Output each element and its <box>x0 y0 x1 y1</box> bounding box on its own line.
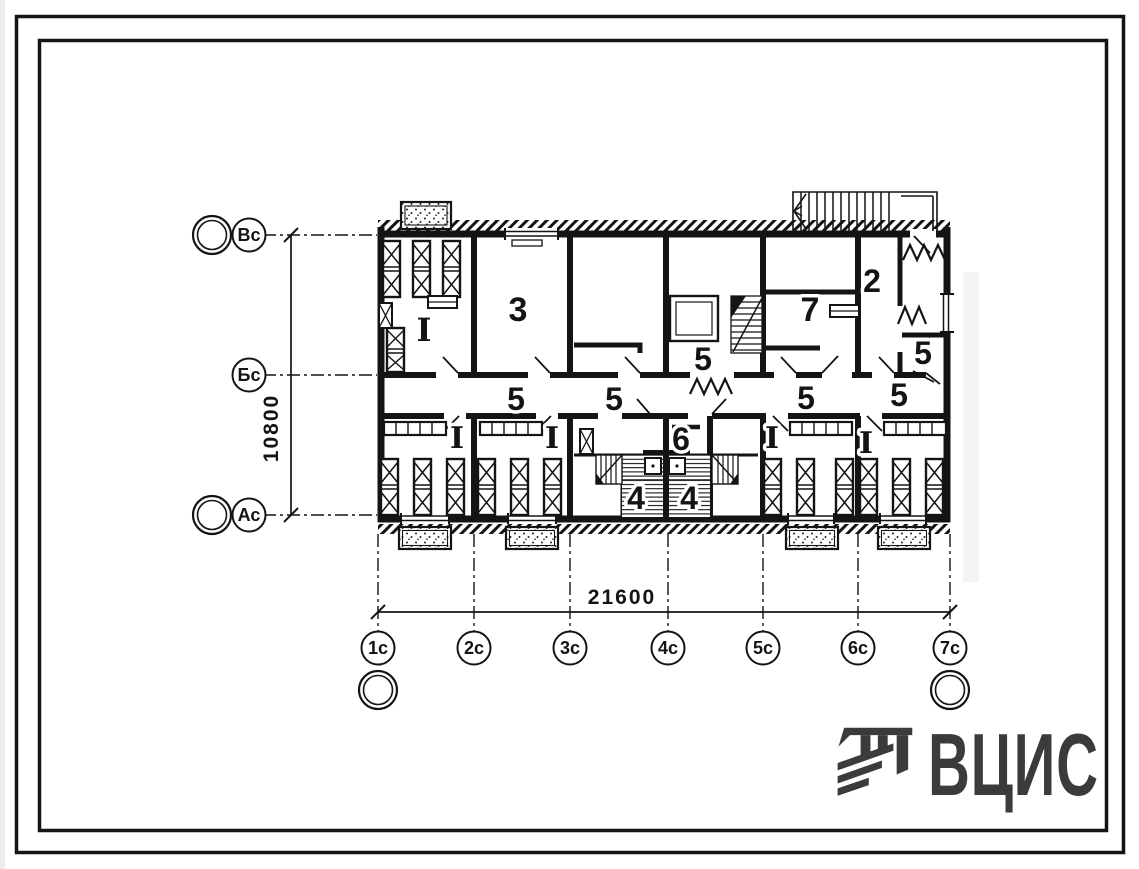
axis-bubble-label: 1с <box>368 638 388 658</box>
table-icon <box>428 296 457 308</box>
stair-lower-right-icon <box>712 455 738 484</box>
top-wall-hatch <box>378 220 950 231</box>
room-label: 6 <box>672 421 690 457</box>
axis-bubble-label: 3с <box>560 638 580 658</box>
room-label: 7 <box>801 291 820 329</box>
axis-bubble-label: 6с <box>848 638 868 658</box>
room-label: 5 <box>507 381 525 417</box>
room-label: 5 <box>605 381 623 417</box>
bed-icon <box>544 459 561 515</box>
axis-bubble-label: Вс <box>237 225 260 245</box>
bed-icon <box>478 459 495 515</box>
room-label: I <box>859 426 873 461</box>
room-label: 5 <box>914 335 932 371</box>
bed-icon <box>387 328 404 372</box>
wardrobe-icon <box>884 422 946 435</box>
stair-lower-left-icon <box>596 455 622 484</box>
bed-icon <box>764 459 781 515</box>
wardrobe-icon <box>790 422 852 435</box>
dim-horizontal-label: 21600 <box>588 586 656 609</box>
room-label: I <box>450 421 464 456</box>
room-label: 4 <box>627 480 645 516</box>
bed-icon <box>926 459 943 515</box>
bed-icon <box>443 241 460 297</box>
room-label: 2 <box>863 263 881 299</box>
scanned-blueprint-page: I357255555II6II44 ВсБсАс 10800 1с2с3с4с5… <box>0 0 1139 869</box>
bed-icon <box>414 459 431 515</box>
room-label: 5 <box>890 377 908 413</box>
axis-bubble-label: 7с <box>940 638 960 658</box>
axis-bubble-label: 4с <box>658 638 678 658</box>
dim-vertical-label: 10800 <box>260 394 283 462</box>
balcony-top-left <box>401 202 451 229</box>
shaft <box>670 296 718 341</box>
bed-icon <box>893 459 910 515</box>
blueprint-canvas: I357255555II6II44 ВсБсАс 10800 1с2с3с4с5… <box>0 0 1139 869</box>
room-label: 5 <box>797 380 815 416</box>
scan-smudge <box>963 272 979 582</box>
axis-bubble-label: Ас <box>238 505 261 525</box>
stair-upper <box>731 296 762 353</box>
bed-icon <box>860 459 877 515</box>
room-label: 5 <box>694 341 712 377</box>
wardrobe-icon <box>384 422 446 435</box>
duct-icon <box>379 303 392 328</box>
wardrobe-icon <box>480 422 542 435</box>
bottom-wall-hatch <box>378 524 950 534</box>
radiator-icon <box>830 305 859 317</box>
bed-icon <box>381 459 398 515</box>
bed-icon <box>511 459 528 515</box>
axis-bubble-label: 5с <box>753 638 773 658</box>
room-label: 3 <box>509 291 528 329</box>
window-right <box>940 294 954 332</box>
bed-icon <box>447 459 464 515</box>
bed-icon <box>413 241 430 297</box>
room-label: I <box>545 421 559 456</box>
axis-bubble-label: 2с <box>464 638 484 658</box>
room-label: I <box>765 421 779 456</box>
scan-edge-shadow <box>0 0 5 869</box>
duct-icon <box>580 429 593 454</box>
bed-icon <box>836 459 853 515</box>
vcis-logo-text: ВЦИС <box>928 716 1099 814</box>
room-label: 4 <box>680 480 698 516</box>
axis-bubble-label: Бс <box>238 365 261 385</box>
bed-icon <box>797 459 814 515</box>
door-gap-top-right <box>910 229 936 239</box>
room-label: I <box>417 311 432 349</box>
bed-icon <box>383 241 400 297</box>
